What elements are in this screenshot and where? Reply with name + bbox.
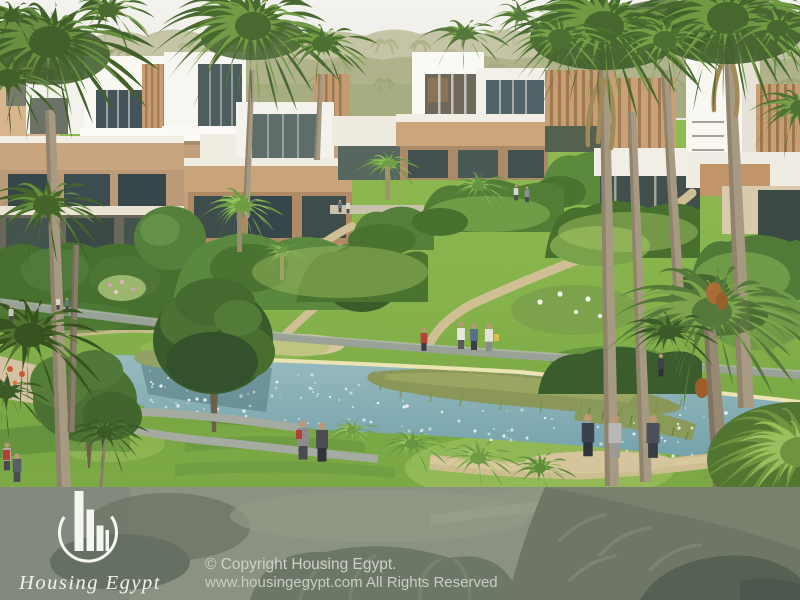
svg-text:Housing Egypt: Housing Egypt xyxy=(18,572,161,594)
svg-text:© Copyright Housing Egypt.: © Copyright Housing Egypt. xyxy=(205,556,397,573)
svg-text:www.housingegypt.com All Right: www.housingegypt.com All Rights Reserved xyxy=(204,574,498,591)
